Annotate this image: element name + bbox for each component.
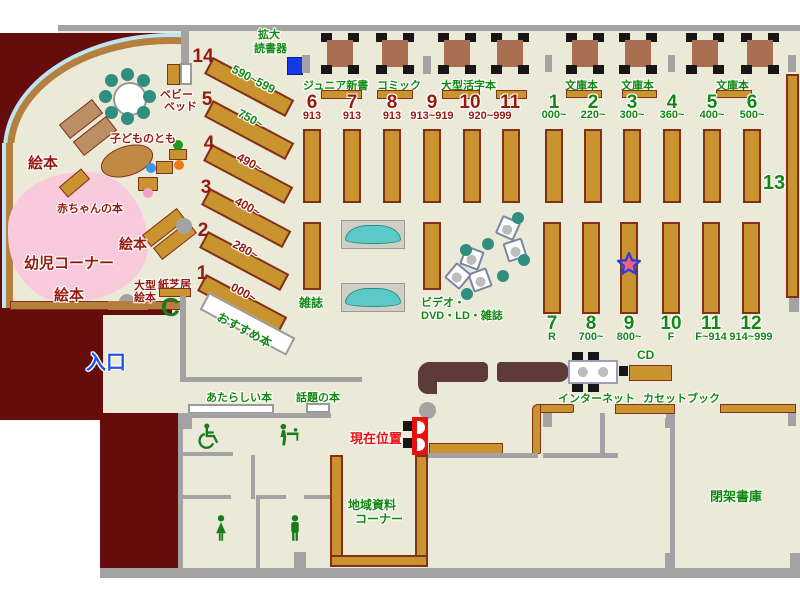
bookshelf xyxy=(463,129,481,203)
pillar xyxy=(423,56,431,74)
phone-mark: C xyxy=(161,292,180,323)
table-top xyxy=(382,40,408,67)
toilet-left-wall xyxy=(178,413,183,570)
internet-table xyxy=(568,360,618,384)
picture-books-label: 絵本 xyxy=(28,152,58,173)
shelf-13-label: 13 xyxy=(762,172,786,195)
shelf-number: 3 xyxy=(191,177,221,199)
large-picture-label-line2: 絵本 xyxy=(134,289,156,305)
magazine-shelf xyxy=(303,222,321,290)
kids-chair xyxy=(105,74,118,87)
internet-equipment xyxy=(619,366,628,376)
chairs xyxy=(321,65,359,74)
bookshelf xyxy=(582,222,600,314)
column-range: 914~999 xyxy=(716,331,786,343)
kids-chair xyxy=(121,112,134,125)
library-floor-map: 絵本 絵本 絵本 幼児コーナー 赤ちゃんの本 子どものとも ベビー ベッド 大型… xyxy=(0,0,800,600)
magazines-label: 雑誌 xyxy=(299,294,323,311)
bookshelf xyxy=(343,129,361,203)
new-books-label: あたらしい本 xyxy=(206,389,272,405)
bookshelf xyxy=(383,129,401,203)
chairs xyxy=(566,65,604,74)
pillar xyxy=(788,413,796,426)
wall-shelf xyxy=(720,404,796,413)
bookshelf xyxy=(623,129,641,203)
wheelchair-icon xyxy=(194,422,222,450)
kids-step xyxy=(156,161,173,174)
pillar xyxy=(790,553,800,568)
reading-table xyxy=(741,33,779,74)
men-toilet-icon xyxy=(282,514,308,544)
table-top xyxy=(625,40,651,67)
pillar xyxy=(788,55,796,72)
av-chair xyxy=(518,254,530,266)
bookshelf xyxy=(545,129,563,203)
chairs xyxy=(376,65,414,74)
play-dot-blue xyxy=(146,163,156,173)
pillar xyxy=(302,55,310,73)
bookshelf xyxy=(743,129,761,203)
closed-stacks-label: 閉架書庫 xyxy=(710,486,762,505)
reading-table xyxy=(491,33,529,74)
reading-table xyxy=(438,33,476,74)
shelf-number: 1 xyxy=(187,263,217,285)
magnifier-reader-label-line2: 読書器 xyxy=(254,40,287,56)
kodomo-no-tomo-label: 子どものとも xyxy=(110,130,176,146)
local-materials-label-line2: コーナー xyxy=(355,510,403,527)
top-wall xyxy=(58,25,800,31)
bottom-wall xyxy=(100,568,800,578)
infant-corner-label: 幼児コーナー xyxy=(24,252,114,273)
service-counter-l-leg xyxy=(418,362,437,394)
cd-shelf xyxy=(629,365,672,381)
bookshelf xyxy=(584,129,602,203)
bookshelf xyxy=(423,129,441,203)
toilet-inner-wall xyxy=(256,499,260,568)
play-dot-pink xyxy=(143,188,153,198)
topical-books-shelf xyxy=(306,403,330,413)
av-chair xyxy=(497,270,509,282)
bookshelf xyxy=(502,129,520,203)
bench-seat xyxy=(345,288,401,307)
pillar xyxy=(789,298,799,312)
chairs xyxy=(741,65,779,74)
kids-chair xyxy=(121,68,134,81)
reading-table xyxy=(321,33,359,74)
service-counter-straight xyxy=(497,362,569,382)
current-location-label: 現在位置 xyxy=(350,428,402,447)
star-marker-icon xyxy=(616,251,642,277)
women-toilet-icon xyxy=(208,514,234,544)
pillar xyxy=(668,55,675,72)
reading-table xyxy=(686,33,724,74)
toilet-inner-wall xyxy=(251,455,255,499)
toilet-inner-wall xyxy=(183,495,231,499)
local-materials-shelf-right xyxy=(415,455,428,567)
bookshelf xyxy=(702,222,720,314)
pillar xyxy=(665,418,675,428)
marker-chair xyxy=(403,438,412,448)
shelf-number: 14 xyxy=(188,46,218,68)
shelf-number: 2 xyxy=(188,220,218,242)
column-range: 913~919 xyxy=(402,110,462,122)
kids-chair xyxy=(143,90,156,103)
bench-seat xyxy=(345,225,401,244)
bookshelf-13 xyxy=(786,74,799,298)
local-materials-shelf-left xyxy=(330,455,343,567)
play-dot-orange xyxy=(174,160,184,170)
room-wall xyxy=(543,453,618,458)
column-range: 920~999 xyxy=(455,110,525,122)
table-top xyxy=(572,40,598,67)
pillar xyxy=(543,413,552,427)
bookshelf xyxy=(543,222,561,314)
table-top xyxy=(497,40,523,67)
pillar xyxy=(545,55,552,72)
kids-step xyxy=(169,149,187,160)
pillar xyxy=(183,415,192,429)
shelf-number: 4 xyxy=(194,133,224,155)
av-chair xyxy=(460,244,472,256)
kids-chair xyxy=(99,90,112,103)
closed-stacks-wall xyxy=(670,427,675,568)
kids-chair xyxy=(137,74,150,87)
bookshelf xyxy=(703,129,721,203)
pillar xyxy=(665,553,675,568)
room-wall xyxy=(600,413,605,457)
table-top xyxy=(692,40,718,67)
baby-change-icon xyxy=(274,422,302,450)
column-range: 500~ xyxy=(722,109,782,121)
toilet-inner-wall xyxy=(183,452,233,456)
toilet-inner-wall xyxy=(256,495,286,499)
reading-bench xyxy=(341,283,405,312)
corridor-wall-horizontal xyxy=(186,377,362,382)
outside-white-patch xyxy=(0,420,100,600)
corridor-wall-vertical xyxy=(180,296,186,382)
kids-chair xyxy=(137,106,150,119)
picture-books-label: 絵本 xyxy=(119,234,147,254)
internet-chair xyxy=(588,352,599,360)
baby-books-label: 赤ちゃんの本 xyxy=(57,200,123,216)
chairs xyxy=(491,65,529,74)
kids-bottom-wall xyxy=(10,301,182,310)
marker-chair xyxy=(403,421,412,431)
chairs xyxy=(686,65,724,74)
pillar xyxy=(294,552,306,568)
local-materials-shelf-bottom xyxy=(330,555,428,567)
toilet-inner-wall xyxy=(304,495,330,499)
bookshelf xyxy=(662,222,680,314)
toilet-top-wall xyxy=(178,413,331,418)
reading-bench xyxy=(341,220,405,249)
table-top xyxy=(444,40,470,67)
reading-table xyxy=(566,33,604,74)
av-chair xyxy=(512,212,524,224)
shelf-number: 5 xyxy=(192,89,222,111)
chairs xyxy=(619,65,657,74)
video-shelf xyxy=(423,222,441,290)
table-top xyxy=(747,40,773,67)
bookshelf xyxy=(303,129,321,203)
magnifier-reader-device xyxy=(287,57,303,75)
l-shelf-vertical xyxy=(532,404,541,454)
video-label-line2: DVD・LD・雑誌 xyxy=(421,307,503,323)
reading-table xyxy=(619,33,657,74)
wall-shelf xyxy=(615,404,675,414)
cd-label: CD xyxy=(637,348,654,362)
table-top xyxy=(327,40,353,67)
bookshelf xyxy=(742,222,760,314)
baby-bed-shelf xyxy=(167,64,180,85)
internet-chair xyxy=(572,352,583,360)
entrance-label: 入口 xyxy=(86,346,126,375)
room-wall xyxy=(428,453,538,458)
reading-table xyxy=(376,33,414,74)
bookshelf xyxy=(663,129,681,203)
picture-books-label: 絵本 xyxy=(54,284,84,305)
chairs xyxy=(438,65,476,74)
av-chair xyxy=(482,238,494,250)
entrance-dark-block-lower xyxy=(100,413,178,570)
